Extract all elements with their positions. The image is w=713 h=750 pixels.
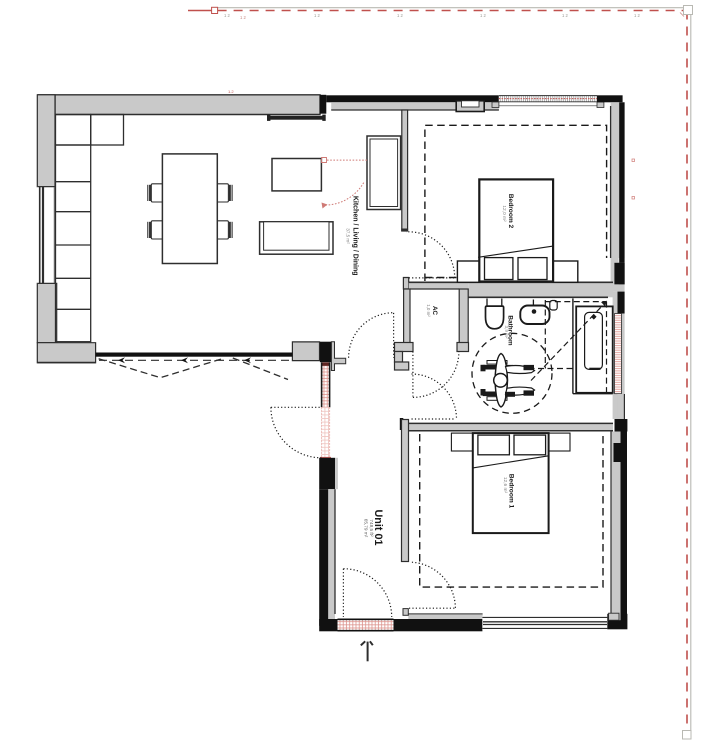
svg-text:1,0 m²: 1,0 m²: [426, 304, 431, 317]
svg-text:1 2: 1 2: [397, 13, 403, 18]
svg-text:12,0 m²: 12,0 m²: [501, 205, 507, 222]
svg-text:1 2: 1 2: [240, 15, 246, 20]
svg-text:1 2: 1 2: [562, 13, 568, 18]
svg-text:Kitchen / Living / Dining: Kitchen / Living / Dining: [351, 196, 358, 276]
svg-text:1 2: 1 2: [480, 13, 486, 18]
svg-text:Bedroom 1: Bedroom 1: [508, 474, 515, 509]
svg-text:1 2: 1 2: [314, 13, 320, 18]
svg-text:1.2: 1.2: [228, 89, 234, 94]
svg-text:3,9 m²: 3,9 m²: [504, 325, 509, 338]
svg-text:1 2: 1 2: [634, 13, 640, 18]
svg-text:65,79 m²: 65,79 m²: [364, 519, 369, 538]
svg-text:12,6 m²: 12,6 m²: [502, 477, 508, 494]
svg-text:Bedroom 2: Bedroom 2: [507, 194, 514, 229]
svg-text:1 2: 1 2: [224, 13, 230, 18]
svg-text:748,5 ft²: 748,5 ft²: [369, 519, 374, 537]
svg-text:37,5 m²: 37,5 m²: [346, 228, 351, 244]
svg-text:AC: AC: [431, 306, 438, 315]
